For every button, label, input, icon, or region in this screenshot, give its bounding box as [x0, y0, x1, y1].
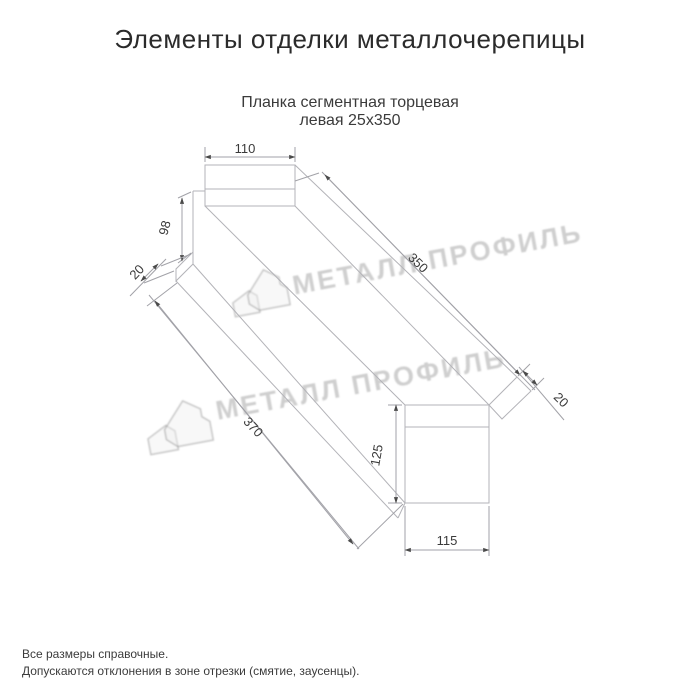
- drawing-line: [244, 266, 290, 312]
- footer-note-1: Все размеры справочные.: [22, 646, 359, 663]
- dim-left-hem: 20: [126, 262, 147, 283]
- dim-top-flange-width: 110: [235, 141, 256, 156]
- drawing-line: [523, 371, 537, 385]
- dim-left-face-height: 98: [156, 219, 174, 237]
- drawing-line: [518, 364, 530, 376]
- watermark-upper: МЕТАЛЛ ПРОФИЛЬ: [228, 212, 586, 317]
- drawing-line: [147, 283, 177, 306]
- technical-drawing: МЕТАЛЛ ПРОФИЛЬ МЕТАЛЛ ПРОФИЛЬ: [0, 0, 700, 700]
- page: Элементы отделки металлочерепицы Планка …: [0, 0, 700, 700]
- footer-note-2: Допускаются отклонения в зоне отрезки (с…: [22, 663, 359, 680]
- metal-profil-logo-icon: [142, 397, 213, 455]
- watermark-lower: МЕТАЛЛ ПРОФИЛЬ: [142, 342, 511, 455]
- part-outline: [176, 165, 531, 518]
- right-end-cap: [405, 405, 489, 503]
- metal-profil-logo-icon: [228, 266, 291, 317]
- drawing-line: [160, 397, 213, 449]
- drawing-line: [295, 173, 319, 181]
- drawing-line: [357, 504, 403, 549]
- dim-right-face-height: 125: [367, 443, 386, 467]
- dim-bottom-flange-width: 115: [437, 533, 458, 548]
- dim-right-hem: 20: [551, 389, 572, 410]
- right-hem: [489, 377, 531, 419]
- footer-notes: Все размеры справочные. Допускаются откл…: [22, 646, 359, 680]
- watermark-text: МЕТАЛЛ ПРОФИЛЬ: [213, 343, 508, 426]
- watermark-text: МЕТАЛЛ ПРОФИЛЬ: [290, 217, 585, 300]
- drawing-line: [176, 281, 398, 518]
- drawing-line: [178, 192, 191, 198]
- left-end-cap: [205, 165, 295, 206]
